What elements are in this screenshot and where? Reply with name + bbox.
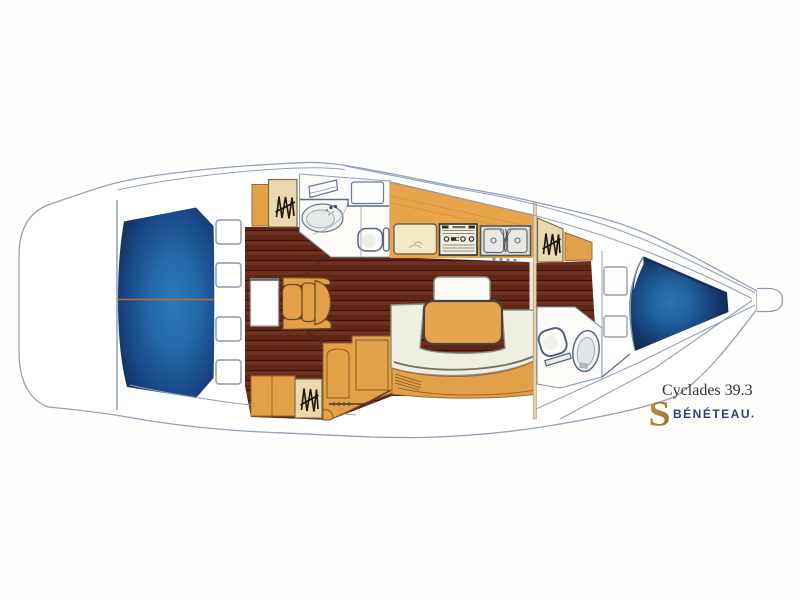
svg-text:BÉNÉTEAU: BÉNÉTEAU <box>673 406 751 421</box>
svg-text:Cyclades 39.3: Cyclades 39.3 <box>662 382 753 399</box>
svg-text:S: S <box>649 394 671 434</box>
